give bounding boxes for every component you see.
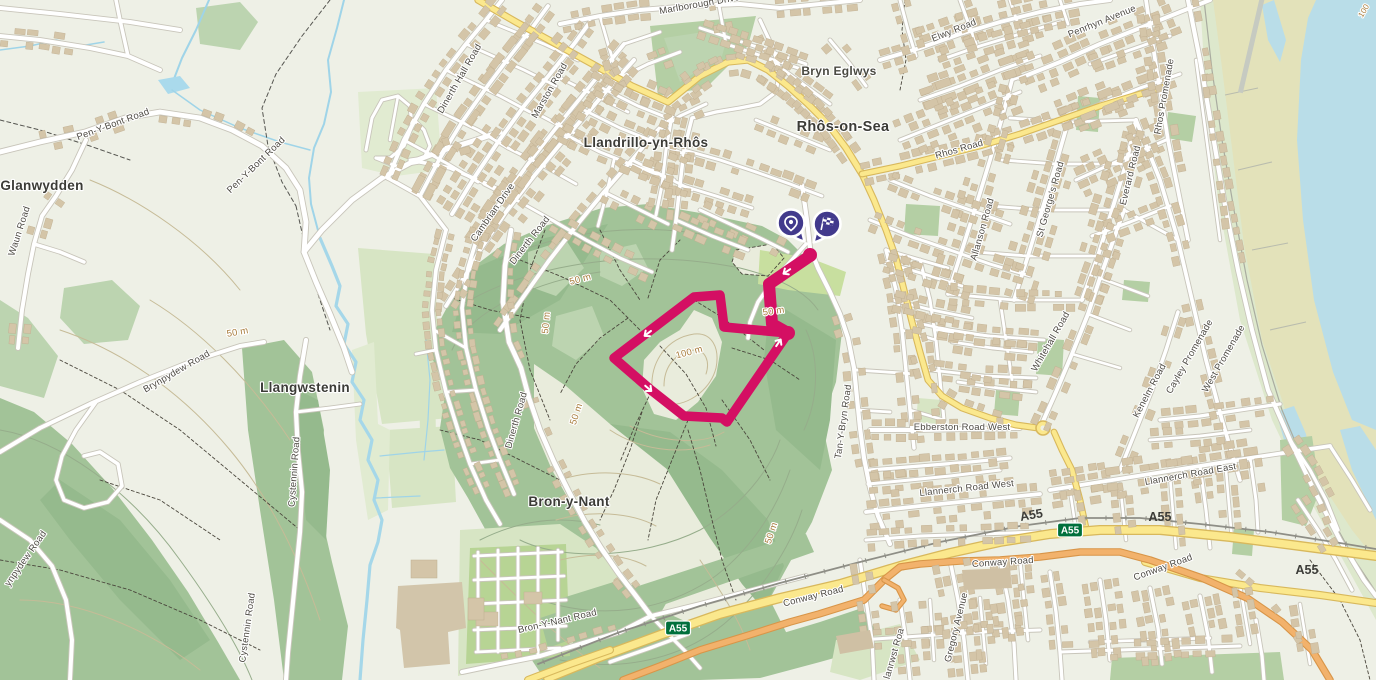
svg-text:Rhôs-on-Sea: Rhôs-on-Sea bbox=[797, 119, 890, 135]
svg-text:A55: A55 bbox=[1296, 563, 1319, 577]
svg-text:Llandrillo-yn-Rhôs: Llandrillo-yn-Rhôs bbox=[584, 135, 709, 150]
svg-text:A55: A55 bbox=[1149, 510, 1172, 524]
svg-text:50 m: 50 m bbox=[540, 311, 553, 334]
svg-text:Llangwstenin: Llangwstenin bbox=[260, 380, 350, 395]
svg-text:Glanwydden: Glanwydden bbox=[0, 178, 83, 193]
svg-text:A55: A55 bbox=[669, 624, 688, 635]
svg-text:Bryn Eglwys: Bryn Eglwys bbox=[801, 64, 876, 78]
svg-text:A55: A55 bbox=[1061, 526, 1080, 537]
svg-text:Ebberston Road West: Ebberston Road West bbox=[914, 422, 1011, 433]
svg-text:Bron-y-Nant: Bron-y-Nant bbox=[528, 494, 609, 509]
